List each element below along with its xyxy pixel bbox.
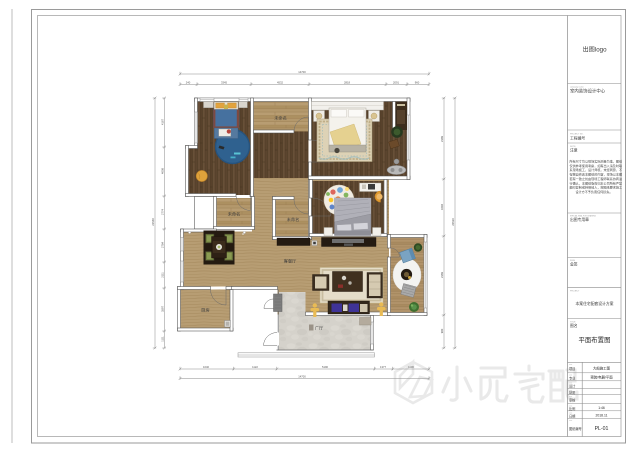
svg-text:3345: 3345 <box>221 81 227 85</box>
svg-text:出图专用章: 出图专用章 <box>570 217 589 222</box>
svg-text:2111: 2111 <box>161 272 165 278</box>
svg-text:设计: 设计 <box>569 383 576 388</box>
svg-text:厨房: 厨房 <box>201 307 209 314</box>
svg-text:制图: 制图 <box>569 390 575 395</box>
svg-text:广厅: 广厅 <box>315 325 323 332</box>
svg-text:预装/电器/平面: 预装/电器/平面 <box>590 375 613 380</box>
svg-text:980: 980 <box>440 328 444 333</box>
svg-text:1122: 1122 <box>252 365 258 369</box>
svg-text:专业: 专业 <box>569 375 575 380</box>
svg-text:设计方不予负责任何损失。: 设计方不予负责任何损失。 <box>575 189 612 194</box>
svg-text:960: 960 <box>415 81 420 85</box>
svg-text:20530: 20530 <box>451 218 455 226</box>
svg-text:2018.11: 2018.11 <box>595 414 607 418</box>
svg-text:1694: 1694 <box>440 204 444 210</box>
svg-text:所有尺寸均以现场实际测量为准，图纸: 所有尺寸均以现场实际测量为准，图纸 <box>570 159 623 164</box>
svg-text:会签: 会签 <box>570 262 578 267</box>
svg-text:14700: 14700 <box>298 70 306 74</box>
svg-text:注意: 注意 <box>570 148 578 153</box>
svg-text:系现场施工，设计师核，未经同意，不: 系现场施工，设计师核，未经同意，不 <box>570 167 623 172</box>
svg-text:1111: 1111 <box>161 336 165 342</box>
svg-text:图纸编号: 图纸编号 <box>569 426 582 431</box>
svg-text:2369: 2369 <box>440 272 444 278</box>
svg-text:2818: 2818 <box>344 81 350 85</box>
svg-text:本案住宅配套设计方案: 本案住宅配套设计方案 <box>576 301 614 306</box>
svg-text:2389: 2389 <box>440 136 444 142</box>
svg-text:工程编号: 工程编号 <box>570 136 585 141</box>
svg-text:3597: 3597 <box>161 306 165 312</box>
svg-text:未命名: 未命名 <box>287 216 300 223</box>
svg-text:出图logo: 出图logo <box>582 46 607 54</box>
svg-text:仅供参考使用考察，如有出入请及时联: 仅供参考使用考察，如有出入请及时联 <box>570 163 623 168</box>
svg-text:未命名: 未命名 <box>228 211 241 218</box>
svg-text:1:46: 1:46 <box>598 406 605 410</box>
svg-text:4008: 4008 <box>161 168 165 174</box>
svg-text:项目: 项目 <box>569 367 575 371</box>
svg-text:得擅自修改本图纸的内容，现场以本图: 得擅自修改本图纸的内容，现场以本图 <box>570 172 623 177</box>
svg-text:4187: 4187 <box>161 119 165 125</box>
svg-text:若有一致之处由现场工程师联系协商进: 若有一致之处由现场工程师联系协商进 <box>570 176 623 181</box>
svg-text:5190: 5190 <box>322 365 328 369</box>
svg-text:1377: 1377 <box>380 365 386 369</box>
svg-text:22548: 22548 <box>151 218 155 226</box>
svg-text:2091: 2091 <box>393 81 399 85</box>
svg-text:日期: 日期 <box>569 413 575 418</box>
svg-text:4532: 4532 <box>277 81 283 85</box>
svg-text:PROJECT: PROJECT <box>570 291 580 293</box>
svg-text:PROJECT NO.: PROJECT NO. <box>570 134 584 136</box>
svg-text:2774: 2774 <box>161 209 165 215</box>
svg-text:室内装饰设计中心: 室内装饰设计中心 <box>570 88 606 95</box>
svg-text:未命名: 未命名 <box>274 115 287 122</box>
svg-text:240: 240 <box>186 81 191 85</box>
svg-text:翻印复制或转借他人，按图纸要求施工: 翻印复制或转借他人，按图纸要求施工 <box>570 185 623 190</box>
svg-text:1040: 1040 <box>203 365 209 369</box>
svg-text:大船施工图: 大船施工图 <box>593 365 611 370</box>
svg-text:14700: 14700 <box>298 375 306 379</box>
svg-text:平面布置图: 平面布置图 <box>579 335 611 344</box>
svg-text:比例: 比例 <box>569 406 575 411</box>
svg-text:客餐厅: 客餐厅 <box>284 258 297 265</box>
svg-text:1130: 1130 <box>408 365 414 369</box>
svg-text:xxxx: xxxx <box>569 364 572 366</box>
svg-text:行确认，本图纸版权归本公司所有严禁: 行确认，本图纸版权归本公司所有严禁 <box>570 180 623 185</box>
svg-text:审核: 审核 <box>569 398 576 403</box>
svg-text:PL-01: PL-01 <box>595 426 609 432</box>
svg-text:图名: 图名 <box>570 323 578 328</box>
svg-text:2784: 2784 <box>161 242 165 248</box>
svg-text:xxxx: xxxx <box>569 396 572 398</box>
svg-text:xxxx: xxxx <box>569 420 572 422</box>
